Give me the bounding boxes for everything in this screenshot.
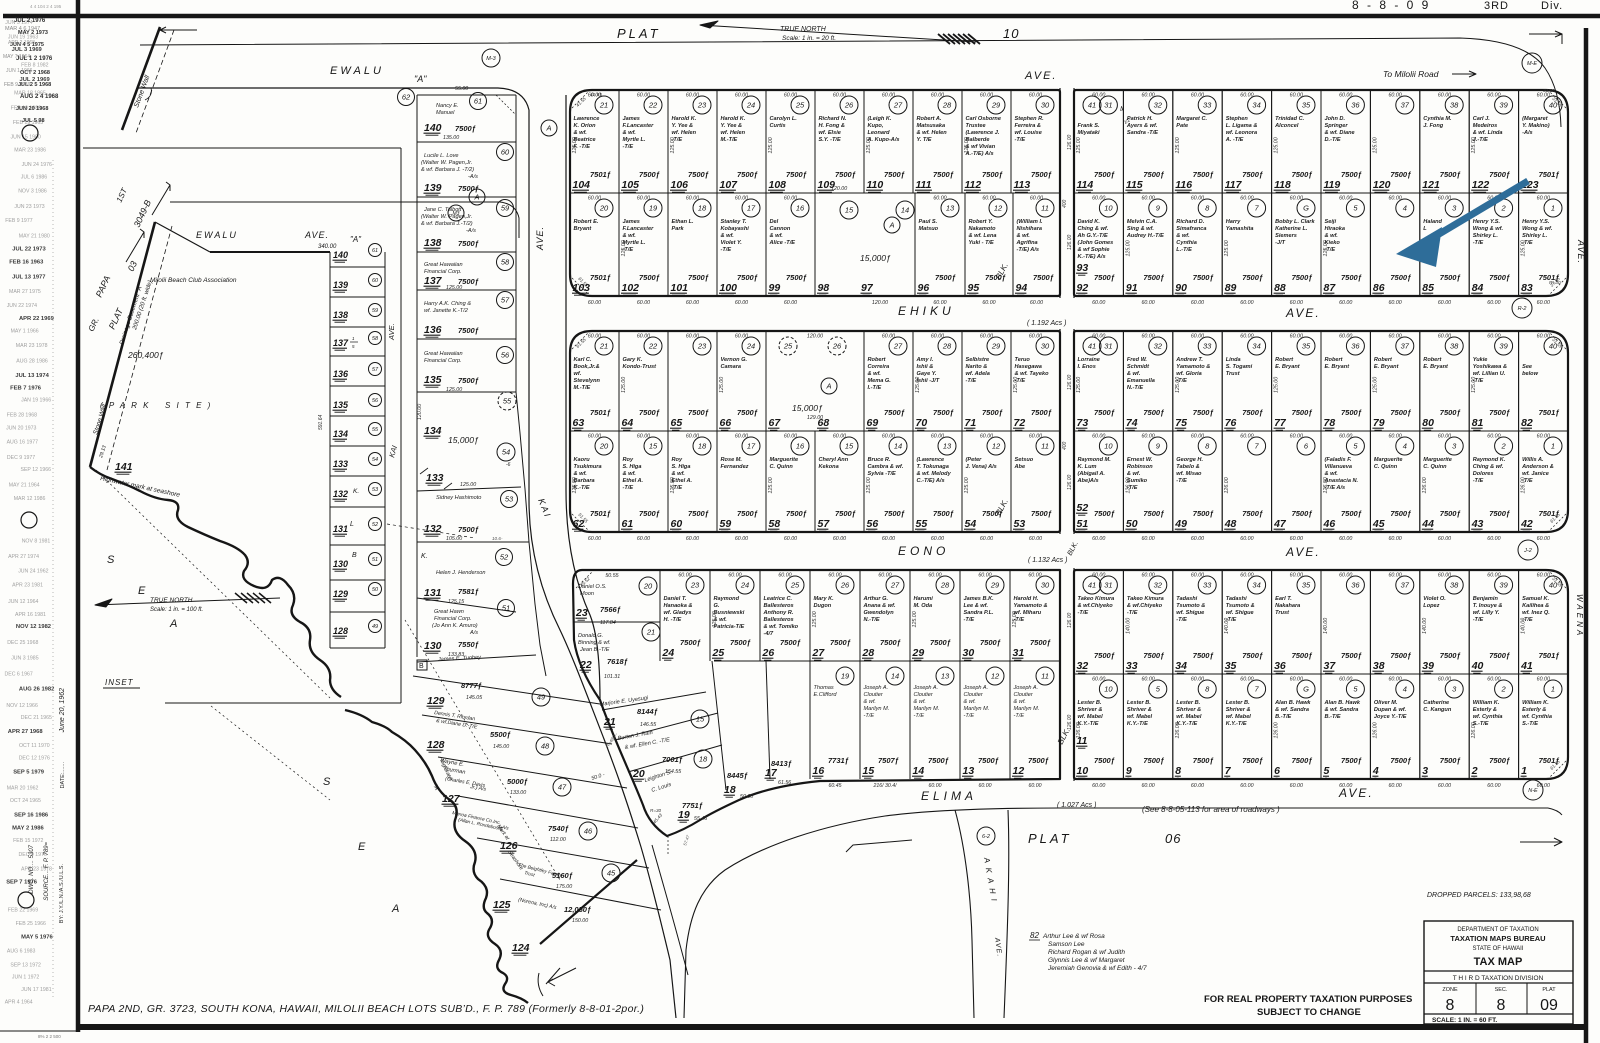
svg-text:Jeremiah Genovia & wf Edith -: Jeremiah Genovia & wf Edith - 4/7 (1047, 965, 1147, 972)
svg-text:14: 14 (891, 672, 899, 681)
svg-text:126.00: 126.00 (1323, 477, 1329, 493)
svg-text:Fernandez: Fernandez (721, 464, 749, 470)
svg-text:64: 64 (622, 417, 634, 429)
svg-text:111: 111 (916, 179, 932, 191)
svg-text:56: 56 (501, 351, 510, 360)
svg-text:125.00: 125.00 (1125, 240, 1131, 256)
svg-text:30: 30 (1041, 581, 1050, 590)
svg-text:Trustee: Trustee (966, 123, 986, 129)
svg-text:K. Orion: K. Orion (574, 123, 597, 129)
svg-text:Kobayashi: Kobayashi (721, 226, 750, 232)
svg-text:7500ƒ: 7500ƒ (1440, 509, 1461, 518)
svg-text:DATE:.......: DATE:....... (60, 762, 66, 789)
svg-text:C. Quinn: C. Quinn (1374, 464, 1398, 470)
svg-text:98: 98 (818, 282, 830, 294)
svg-text:Financial Corp.: Financial Corp. (434, 616, 472, 622)
svg-text:72: 72 (1014, 417, 1026, 429)
svg-text:60.00: 60.00 (1141, 536, 1154, 542)
svg-text:Milolii Beach Club Association: Milolii Beach Club Association (150, 277, 237, 284)
svg-text:31: 31 (1104, 581, 1112, 590)
svg-text:145.00: 145.00 (493, 744, 509, 750)
svg-text:Stephen: Stephen (1226, 116, 1249, 122)
svg-text:47: 47 (1273, 518, 1287, 530)
svg-text:136: 136 (424, 324, 442, 336)
svg-text:60.00: 60.00 (1092, 536, 1105, 542)
svg-text:James B.K.: James B.K. (964, 596, 995, 602)
svg-text:7500ƒ: 7500ƒ (1440, 651, 1461, 660)
svg-text:60.00: 60.00 (1092, 783, 1105, 789)
svg-text:Shriver &: Shriver & (1176, 707, 1201, 713)
svg-text:51: 51 (1077, 518, 1089, 530)
svg-text:65: 65 (671, 417, 683, 429)
svg-text:7500ƒ: 7500ƒ (835, 170, 856, 179)
svg-text:Vernon G.: Vernon G. (721, 357, 748, 363)
svg-text:wf. Cynthia: wf. Cynthia (1522, 714, 1552, 720)
svg-text:Setsuo: Setsuo (1015, 457, 1034, 463)
svg-text:M-E: M-E (1527, 61, 1537, 67)
svg-text:Kaoru: Kaoru (574, 457, 591, 463)
svg-text:60.00: 60.00 (1290, 783, 1303, 789)
svg-text:Harumi: Harumi (914, 596, 934, 602)
svg-text:60.00: 60.00 (1438, 536, 1451, 542)
svg-text:7500ƒ: 7500ƒ (982, 408, 1003, 417)
svg-text:118: 118 (1274, 179, 1291, 191)
svg-text:53: 53 (372, 487, 379, 493)
svg-text:Y. Makino): Y. Makino) (1522, 123, 1550, 129)
svg-text:45: 45 (607, 869, 616, 878)
svg-text:C. Kangun: C. Kangun (1423, 707, 1452, 713)
svg-text:NOV 12 1966: NOV 12 1966 (6, 703, 38, 709)
svg-text:139: 139 (333, 280, 348, 290)
svg-text:-T/E: -T/E (864, 713, 875, 719)
svg-text:7500ƒ: 7500ƒ (1094, 756, 1115, 765)
svg-text:106: 106 (671, 179, 689, 191)
svg-text:28: 28 (942, 342, 952, 351)
svg-text:Joyce Y.-T/E: Joyce Y.-T/E (1374, 714, 1407, 720)
svg-text:66: 66 (720, 417, 732, 429)
svg-text:(William I.: (William I. (1017, 219, 1044, 225)
svg-text:Dupan & wf.: Dupan & wf. (1374, 707, 1407, 713)
svg-text:126.00: 126.00 (1067, 134, 1073, 150)
svg-text:AVE.: AVE. (1285, 545, 1321, 559)
svg-text:M-3: M-3 (486, 56, 496, 62)
svg-text:126.00: 126.00 (1067, 474, 1073, 490)
svg-text:( 1.132 Acs ): ( 1.132 Acs ) (1028, 557, 1067, 564)
svg-text:-J/T: -J/T (1275, 240, 1286, 246)
svg-text:60.00: 60.00 (637, 300, 650, 306)
svg-text:Cannon: Cannon (770, 226, 791, 232)
svg-text:wf. Mabel: wf. Mabel (1078, 714, 1104, 720)
svg-text:8% 2 2 500: 8% 2 2 500 (38, 1034, 61, 1039)
svg-text:48: 48 (1224, 518, 1237, 530)
svg-text:7501ƒ: 7501ƒ (1539, 651, 1560, 660)
svg-text:S.Y. -T/E: S.Y. -T/E (819, 137, 841, 143)
svg-text:-T/E: -T/E (721, 247, 732, 253)
svg-text:Henry Y.S.: Henry Y.S. (1473, 219, 1501, 225)
svg-text:24: 24 (746, 101, 755, 110)
svg-text:1: 1 (1551, 685, 1555, 694)
svg-text:120.00: 120.00 (831, 186, 847, 192)
svg-text:7500ƒ: 7500ƒ (639, 170, 660, 179)
svg-text:125.00: 125.00 (1076, 377, 1082, 393)
svg-text:7500ƒ: 7500ƒ (1341, 273, 1362, 282)
svg-text:Marilyn M.: Marilyn M. (914, 706, 940, 712)
svg-text:23: 23 (697, 342, 707, 351)
svg-text:Paul S.: Paul S. (919, 219, 938, 225)
svg-text:125.00: 125.00 (712, 611, 718, 627)
svg-text:wf. Leonora: wf. Leonora (1226, 130, 1257, 136)
svg-text:7500ƒ: 7500ƒ (737, 273, 758, 282)
svg-text:56: 56 (867, 518, 879, 530)
svg-text:Yamamoto &: Yamamoto & (1014, 603, 1048, 609)
svg-text:JUN 3 1985: JUN 3 1985 (11, 655, 39, 661)
svg-text:Ching & wf.: Ching & wf. (1078, 226, 1109, 232)
svg-text:E. Bryant: E. Bryant (1275, 364, 1301, 370)
svg-text:39: 39 (1422, 660, 1434, 672)
svg-text:86: 86 (1373, 282, 1385, 294)
svg-text:7501ƒ: 7501ƒ (590, 273, 611, 282)
svg-text:60.00: 60.00 (1487, 300, 1500, 306)
svg-text:Miyataki: Miyataki (1078, 130, 1101, 136)
svg-text:Agrifina: Agrifina (1016, 240, 1038, 246)
svg-text:93: 93 (1077, 262, 1089, 274)
svg-text:Trust: Trust (1226, 371, 1241, 377)
svg-text:125.00: 125.00 (572, 137, 578, 153)
svg-text:7500ƒ: 7500ƒ (680, 638, 701, 647)
svg-text:Ching & wf.: Ching & wf. (1473, 464, 1504, 470)
svg-text:60.00: 60.00 (1388, 300, 1401, 306)
svg-text:Nishihara: Nishihara (1017, 226, 1043, 232)
svg-text:7500ƒ: 7500ƒ (1143, 170, 1164, 179)
svg-text:113: 113 (1014, 179, 1031, 191)
svg-text:34: 34 (1252, 342, 1260, 351)
svg-text:Abe)A/s: Abe)A/s (1077, 478, 1099, 484)
svg-text:60.00: 60.00 (588, 300, 601, 306)
svg-text:T H I R D TAXATION DIVISION: T H I R D TAXATION DIVISION (1453, 975, 1544, 982)
svg-text:Roy: Roy (623, 457, 634, 463)
svg-text:M.-T/E: M.-T/E (721, 137, 738, 143)
svg-text:wf. Shigue: wf. Shigue (1176, 610, 1204, 616)
svg-text:Harold K.: Harold K. (672, 116, 697, 122)
svg-text:K.Y.-T/E: K.Y.-T/E (1226, 721, 1247, 727)
svg-text:Earl T.: Earl T. (1275, 596, 1292, 602)
svg-text:117.84: 117.84 (600, 620, 616, 626)
svg-text:60: 60 (372, 278, 379, 284)
svg-text:& wf.: & wf. (721, 233, 735, 239)
svg-text:( P A R K: ( P A R K (100, 401, 150, 410)
svg-text:7500ƒ: 7500ƒ (980, 638, 1001, 647)
svg-text:DEC 9 1977: DEC 9 1977 (7, 455, 35, 461)
svg-text:Stanley T.: Stanley T. (721, 219, 747, 225)
svg-text:9: 9 (1126, 765, 1132, 777)
svg-text:NOV 3 1986: NOV 3 1986 (18, 188, 47, 194)
svg-text:Benjamin: Benjamin (1473, 596, 1499, 602)
svg-text:(See 8-8-05-113 for area o: (See 8-8-05-113 for area of roadways ) (1142, 805, 1280, 814)
svg-text:MAR 23 1986: MAR 23 1986 (14, 148, 46, 154)
svg-text:50.00: 50.00 (740, 794, 753, 800)
svg-text:Catherine: Catherine (1423, 700, 1449, 706)
svg-text:wf. Inez Q.: wf. Inez Q. (1522, 610, 1550, 616)
svg-text:131: 131 (333, 524, 348, 534)
svg-text:60: 60 (671, 518, 683, 530)
svg-text:25: 25 (783, 342, 793, 351)
svg-text:TRUE NORTH: TRUE NORTH (780, 26, 827, 33)
svg-text:JUN 24 1976: JUN 24 1976 (22, 162, 52, 168)
svg-text:57: 57 (372, 367, 379, 373)
svg-text:wf. Gladys: wf. Gladys (664, 610, 692, 616)
svg-text:Raymond M.: Raymond M. (1078, 457, 1112, 463)
svg-text:7500ƒ: 7500ƒ (884, 170, 905, 179)
svg-text:7500ƒ: 7500ƒ (786, 273, 807, 282)
svg-text:8: 8 (1175, 765, 1181, 777)
svg-text:125.00: 125.00 (1521, 240, 1527, 256)
svg-text:Patrick H.: Patrick H. (1127, 116, 1153, 122)
svg-text:105.00: 105.00 (446, 536, 462, 542)
svg-text:60.00: 60.00 (784, 536, 797, 542)
svg-text:27: 27 (812, 647, 826, 659)
svg-text:15: 15 (845, 442, 854, 451)
svg-text:(Peter: (Peter (966, 457, 983, 463)
svg-text:James: James (623, 219, 640, 225)
svg-text:Bruce R.: Bruce R. (868, 457, 891, 463)
svg-text:140: 140 (424, 122, 442, 134)
svg-text:60.00: 60.00 (1537, 536, 1550, 542)
svg-text:-T/E: -T/E (914, 713, 925, 719)
svg-text:Matsusaka: Matsusaka (917, 123, 946, 129)
svg-text:& wf.: & wf. (770, 233, 784, 239)
svg-text:41: 41 (1088, 342, 1096, 351)
svg-text:"A": "A" (414, 74, 427, 84)
svg-text:41: 41 (1088, 101, 1096, 110)
svg-text:Robert: Robert (1423, 357, 1442, 363)
svg-text:97: 97 (861, 282, 874, 294)
svg-text:112: 112 (965, 179, 982, 191)
svg-text:22: 22 (648, 342, 658, 351)
svg-text:& wf. Sandra: & wf. Sandra (1325, 707, 1359, 713)
svg-text:Gwendolyn: Gwendolyn (864, 610, 895, 616)
svg-text:7501ƒ: 7501ƒ (1539, 756, 1560, 765)
svg-text:60.00: 60.00 (1240, 536, 1253, 542)
svg-text:10: 10 (1003, 26, 1019, 41)
svg-text:132: 132 (424, 523, 442, 535)
svg-text:DEC 12 1976: DEC 12 1976 (19, 755, 50, 761)
svg-text:James: James (623, 116, 640, 122)
svg-text:60.00: 60.00 (833, 536, 846, 542)
svg-text:I. Enos: I. Enos (1078, 364, 1096, 370)
svg-text:58: 58 (372, 336, 379, 342)
svg-text:7500ƒ: 7500ƒ (1094, 509, 1115, 518)
svg-text:SEC.: SEC. (1495, 987, 1508, 993)
svg-text:125.00: 125.00 (1224, 240, 1230, 256)
svg-text:EWALU: EWALU (196, 230, 238, 240)
svg-text:54: 54 (372, 457, 378, 463)
svg-text:Villanueva: Villanueva (1325, 464, 1352, 470)
svg-text:Karl C.: Karl C. (574, 357, 592, 363)
svg-text:400: 400 (1062, 441, 1068, 450)
svg-text:30: 30 (963, 647, 975, 659)
svg-text:& wf.: & wf. (1127, 371, 1141, 377)
svg-text:44: 44 (1421, 518, 1434, 530)
svg-text:D.-T/E: D.-T/E (1325, 137, 1341, 143)
svg-text:K.-T/E) A/s: K.-T/E) A/s (1078, 254, 1106, 260)
svg-text:7500ƒ: 7500ƒ (933, 170, 954, 179)
svg-text:21: 21 (603, 716, 616, 728)
svg-text:7500ƒ: 7500ƒ (1390, 170, 1411, 179)
svg-text:EHIKU: EHIKU (898, 304, 955, 318)
svg-text:Nakamoto: Nakamoto (969, 226, 997, 232)
svg-text:60.00: 60.00 (1339, 536, 1352, 542)
svg-text:16: 16 (813, 765, 825, 777)
svg-text:FEB 15 1972: FEB 15 1972 (13, 838, 43, 844)
svg-text:60.00: 60.00 (735, 536, 748, 542)
svg-text:below: below (1522, 371, 1538, 377)
svg-text:A: A (169, 618, 177, 630)
svg-text:18: 18 (698, 204, 707, 213)
svg-text:7581ƒ: 7581ƒ (458, 587, 479, 596)
svg-text:Scale: 1 in. = 100 ft.: Scale: 1 in. = 100 ft. (150, 607, 203, 613)
svg-text:7500ƒ: 7500ƒ (1193, 651, 1214, 660)
svg-text:48: 48 (541, 742, 550, 751)
svg-text:Tsumoto &: Tsumoto & (1176, 603, 1205, 609)
svg-text:7500ƒ: 7500ƒ (1143, 408, 1164, 417)
svg-text:AUG 28 1986: AUG 28 1986 (16, 359, 48, 365)
svg-text:34: 34 (1252, 581, 1260, 590)
svg-text:19: 19 (678, 809, 690, 821)
svg-text:SEP 13 1972: SEP 13 1972 (10, 962, 41, 968)
svg-text:Alan B. Hawk: Alan B. Hawk (1324, 700, 1361, 706)
svg-text:14: 14 (894, 442, 902, 451)
svg-text:7500ƒ: 7500ƒ (978, 756, 999, 765)
svg-text:150.00: 150.00 (572, 918, 588, 924)
svg-text:59: 59 (720, 518, 732, 530)
svg-text:B: B (419, 663, 424, 670)
svg-text:7501ƒ: 7501ƒ (590, 408, 611, 417)
svg-text:Cheryl Ann: Cheryl Ann (819, 457, 849, 463)
svg-text:46: 46 (1323, 518, 1336, 530)
svg-text:96: 96 (918, 282, 930, 294)
svg-text:137: 137 (424, 275, 443, 287)
svg-text:38: 38 (1373, 660, 1385, 672)
svg-text:wf. Mabel: wf. Mabel (1176, 714, 1202, 720)
svg-text:-T/E: -T/E (966, 378, 977, 384)
svg-text:68: 68 (818, 417, 830, 429)
svg-text:60.00: 60.00 (686, 536, 699, 542)
svg-text:A. -T/E: A. -T/E (1225, 137, 1244, 143)
svg-text:7500ƒ: 7500ƒ (737, 509, 758, 518)
svg-text:7500ƒ: 7500ƒ (1341, 651, 1362, 660)
svg-text:5500ƒ: 5500ƒ (490, 730, 511, 739)
svg-text:126.00: 126.00 (1471, 722, 1477, 738)
svg-text:7550ƒ: 7550ƒ (458, 640, 479, 649)
svg-text:69: 69 (867, 417, 879, 429)
svg-text:7500ƒ: 7500ƒ (1193, 509, 1214, 518)
svg-text:& wf. Barbara J. -T/2): & wf. Barbara J. -T/2) (421, 167, 474, 173)
svg-text:7500ƒ: 7500ƒ (1341, 756, 1362, 765)
svg-text:40: 40 (1549, 581, 1558, 590)
svg-text:JAN 19 1966: JAN 19 1966 (21, 398, 51, 404)
svg-text:Ballesteros: Ballesteros (764, 617, 794, 623)
svg-text:74: 74 (1126, 417, 1138, 429)
svg-text:Linda: Linda (1226, 357, 1241, 363)
svg-text:7500ƒ: 7500ƒ (1094, 170, 1115, 179)
svg-text:EWALU: EWALU (330, 65, 384, 77)
svg-text:OCT 24 1965: OCT 24 1965 (10, 798, 41, 804)
svg-text:APR 22 1969: APR 22 1969 (19, 316, 55, 322)
svg-text:K.Y.-T/E: K.Y.-T/E (1127, 721, 1148, 727)
svg-text:29: 29 (991, 342, 1001, 351)
svg-text:JUN 22 1974: JUN 22 1974 (7, 303, 37, 309)
svg-text:& wf. Melody: & wf. Melody (917, 471, 952, 477)
svg-text:FOR REAL PROPERTY TAXATION: FOR REAL PROPERTY TAXATION PURPOSES (1204, 994, 1412, 1005)
svg-text:27: 27 (893, 342, 903, 351)
svg-text:Patricia-T/E: Patricia-T/E (714, 624, 745, 630)
svg-text:APR 16 1981: APR 16 1981 (15, 612, 46, 618)
svg-text:Matsuo: Matsuo (919, 226, 939, 232)
svg-text:7500ƒ: 7500ƒ (884, 408, 905, 417)
svg-text:7500ƒ: 7500ƒ (737, 408, 758, 417)
svg-text:Frank S.: Frank S. (1078, 123, 1101, 129)
svg-text:102: 102 (622, 282, 640, 294)
svg-text:35: 35 (1302, 342, 1311, 351)
svg-text:52: 52 (1077, 502, 1089, 514)
svg-text:Great Hawaiian: Great Hawaiian (424, 262, 463, 268)
svg-text:60.00: 60.00 (1030, 300, 1043, 306)
svg-text:60.00: 60.00 (637, 536, 650, 542)
svg-text:125.00: 125.00 (964, 137, 970, 153)
svg-text:28: 28 (862, 647, 875, 659)
svg-text:39: 39 (1499, 581, 1508, 590)
svg-text:7751ƒ: 7751ƒ (682, 801, 703, 810)
svg-text:7500ƒ: 7500ƒ (1390, 509, 1411, 518)
svg-text:7501ƒ: 7501ƒ (1539, 273, 1560, 282)
svg-text:Cambra & wf.: Cambra & wf. (868, 464, 904, 470)
svg-text:Audrey H.-T/E: Audrey H.-T/E (1126, 233, 1164, 239)
svg-text:MAR 27 1975: MAR 27 1975 (9, 289, 41, 295)
svg-text:E: E (358, 841, 366, 853)
svg-text:Raymond: Raymond (714, 596, 740, 602)
svg-text:JUL 6 1986: JUL 6 1986 (21, 174, 47, 180)
svg-text:18: 18 (699, 755, 708, 764)
svg-text:7500ƒ: 7500ƒ (688, 170, 709, 179)
svg-text:7500ƒ: 7500ƒ (1242, 408, 1263, 417)
svg-text:Joseph A.: Joseph A. (1013, 685, 1039, 691)
svg-text:Carolyn L.: Carolyn L. (770, 116, 798, 122)
svg-text:7731ƒ: 7731ƒ (828, 756, 849, 765)
svg-text:18: 18 (724, 784, 736, 796)
svg-text:42: 42 (1520, 518, 1533, 530)
svg-text:25: 25 (790, 581, 800, 590)
svg-text:25: 25 (712, 647, 725, 659)
svg-text:40: 40 (1549, 342, 1558, 351)
svg-text:Seiji: Seiji (1325, 219, 1337, 225)
svg-text:121: 121 (1422, 179, 1440, 191)
svg-text:SEP 5 1979: SEP 5 1979 (13, 770, 45, 776)
svg-text:126.00: 126.00 (1372, 722, 1378, 738)
svg-text:7500ƒ: 7500ƒ (1341, 170, 1362, 179)
svg-text:33: 33 (1203, 342, 1212, 351)
svg-text:24: 24 (740, 581, 749, 590)
svg-text:JUL 13 1977: JUL 13 1977 (12, 275, 45, 281)
svg-text:126.00: 126.00 (1067, 234, 1073, 250)
svg-text:JUN 1 1966: JUN 1 1966 (6, 68, 33, 74)
svg-text:14: 14 (901, 206, 909, 215)
svg-text:NOV 8 1981: NOV 8 1981 (22, 538, 51, 544)
svg-text:120.00: 120.00 (807, 334, 823, 340)
svg-text:37: 37 (1401, 101, 1410, 110)
svg-text:-A/s: -A/s (1522, 130, 1533, 136)
svg-text:John D.: John D. (1325, 116, 1346, 122)
svg-text:L. Ligama &: L. Ligama & (1226, 123, 1258, 129)
